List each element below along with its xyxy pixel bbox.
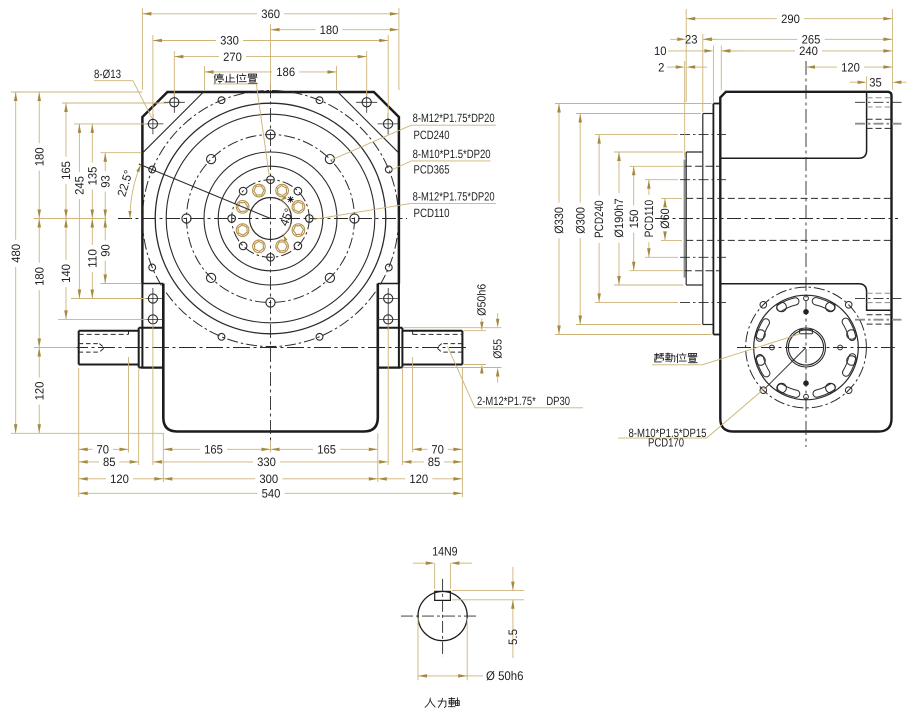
svg-text:2-M12*P1.75* DP30: 2-M12*P1.75* DP30 [477, 394, 570, 408]
svg-text:480: 480 [9, 244, 23, 263]
svg-text:8-M10*P1.5*DP20: 8-M10*P1.5*DP20 [413, 147, 491, 161]
svg-text:Ø50h6: Ø50h6 [474, 283, 488, 315]
svg-text:165: 165 [59, 161, 73, 180]
svg-text:245: 245 [73, 176, 87, 195]
svg-text:120: 120 [32, 381, 46, 400]
svg-text:2: 2 [658, 60, 665, 74]
svg-text:PCD365: PCD365 [414, 163, 450, 177]
svg-text:8-M12*P1.75*DP20: 8-M12*P1.75*DP20 [413, 189, 495, 203]
svg-text:360: 360 [261, 7, 280, 21]
svg-text:10: 10 [654, 44, 667, 58]
svg-text:290: 290 [781, 12, 800, 26]
svg-text:330: 330 [257, 455, 276, 469]
svg-text:140: 140 [59, 264, 73, 283]
svg-text:300: 300 [259, 472, 278, 486]
svg-text:PCD170: PCD170 [648, 436, 684, 450]
svg-text:Ø 50h6: Ø 50h6 [486, 669, 524, 683]
svg-text:14N9: 14N9 [432, 545, 458, 559]
svg-text:93: 93 [98, 175, 112, 188]
svg-text:Ø190h7: Ø190h7 [612, 198, 626, 237]
svg-text:150: 150 [627, 209, 641, 228]
svg-text:PCD110: PCD110 [642, 200, 656, 238]
svg-text:8-Ø13: 8-Ø13 [94, 67, 121, 81]
svg-text:5.5: 5.5 [506, 629, 520, 645]
svg-text:120: 120 [110, 472, 129, 486]
svg-text:90: 90 [98, 244, 112, 257]
svg-text:23: 23 [685, 33, 698, 47]
svg-text:PCD240: PCD240 [414, 128, 450, 142]
svg-text:180: 180 [320, 23, 339, 37]
svg-text:110: 110 [85, 249, 99, 268]
svg-text:85: 85 [428, 455, 441, 469]
svg-text:Ø300: Ø300 [573, 207, 587, 234]
svg-text:240: 240 [799, 44, 818, 58]
svg-text:PCD240: PCD240 [592, 200, 606, 238]
svg-text:Ø60: Ø60 [658, 208, 672, 229]
svg-text:120: 120 [841, 60, 860, 74]
svg-text:270: 270 [223, 50, 242, 64]
svg-text:165: 165 [204, 443, 223, 457]
svg-text:PCD110: PCD110 [414, 206, 450, 220]
svg-text:186: 186 [276, 65, 295, 79]
svg-text:165: 165 [317, 443, 336, 457]
svg-text:135: 135 [85, 166, 99, 185]
svg-text:540: 540 [262, 487, 281, 501]
svg-text:180: 180 [32, 267, 46, 286]
svg-text:8-M12*P1.75*DP20: 8-M12*P1.75*DP20 [413, 111, 495, 125]
svg-text:Ø330: Ø330 [552, 207, 566, 234]
svg-text:Ø55: Ø55 [490, 338, 504, 358]
svg-text:35: 35 [869, 75, 882, 89]
svg-text:180: 180 [32, 147, 46, 166]
svg-text:85: 85 [103, 455, 116, 469]
svg-text:330: 330 [220, 34, 239, 48]
svg-text:120: 120 [409, 472, 428, 486]
